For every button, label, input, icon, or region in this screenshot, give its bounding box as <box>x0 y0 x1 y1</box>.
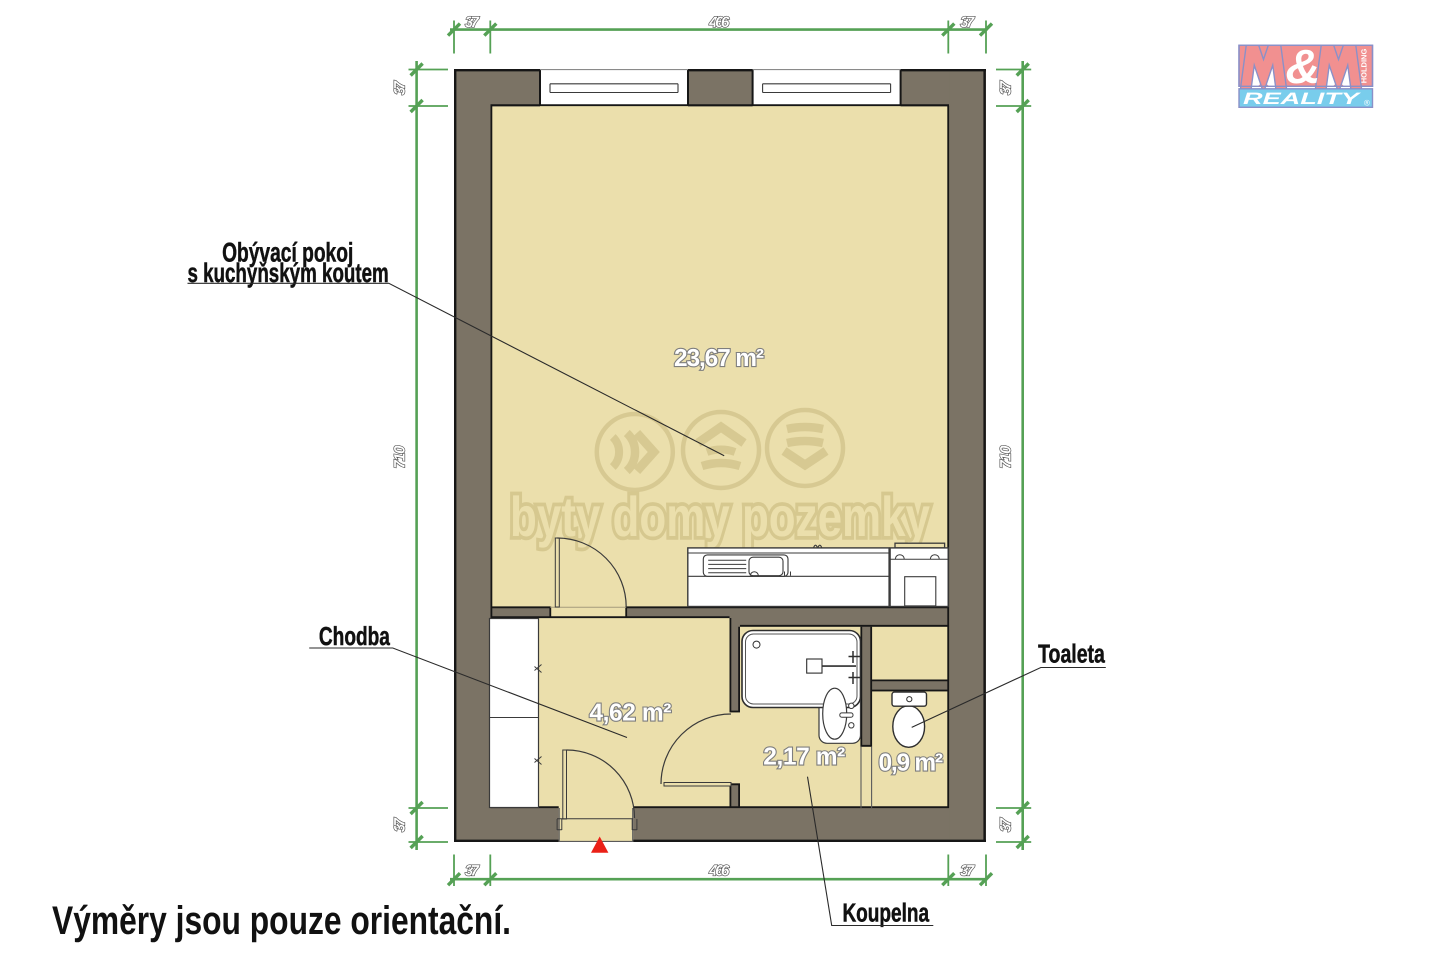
svg-text:byty domy pozemky: byty domy pozemky <box>510 485 930 548</box>
svg-text:2,17 m²: 2,17 m² <box>763 744 845 771</box>
svg-text:37: 37 <box>465 863 480 880</box>
svg-text:37: 37 <box>465 14 480 31</box>
svg-text:0,9 m²: 0,9 m² <box>879 750 944 777</box>
svg-text:466: 466 <box>708 863 730 880</box>
svg-text:Výměry jsou pouze orientační.: Výměry jsou pouze orientační. <box>52 899 511 943</box>
svg-text:37: 37 <box>392 817 409 832</box>
svg-text:Koupelna: Koupelna <box>842 898 929 928</box>
svg-text:37: 37 <box>960 14 975 31</box>
svg-text:37: 37 <box>960 863 975 880</box>
svg-text:23,67 m²: 23,67 m² <box>674 345 764 372</box>
svg-text:710: 710 <box>392 445 409 469</box>
svg-text:®: ® <box>1364 99 1370 108</box>
svg-text:Toaleta: Toaleta <box>1038 639 1105 669</box>
svg-text:37: 37 <box>392 80 409 95</box>
svg-text:HOLDING: HOLDING <box>1360 49 1369 84</box>
svg-text:710: 710 <box>998 445 1015 469</box>
svg-text:REALITY: REALITY <box>1243 90 1362 108</box>
svg-text:37: 37 <box>998 80 1015 95</box>
svg-text:466: 466 <box>708 14 730 31</box>
svg-text:37: 37 <box>998 817 1015 832</box>
svg-text:4,62 m²: 4,62 m² <box>589 700 671 727</box>
svg-text:Chodba: Chodba <box>319 621 390 651</box>
